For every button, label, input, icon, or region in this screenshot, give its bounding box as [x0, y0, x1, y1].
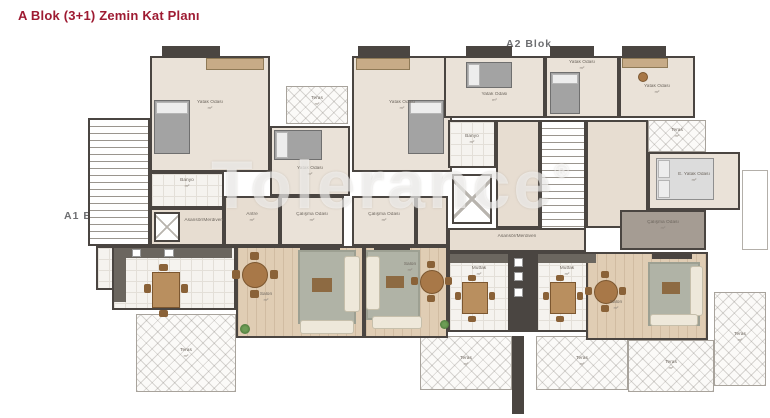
- chair: [556, 275, 564, 281]
- chair: [556, 316, 564, 322]
- chair: [250, 252, 259, 260]
- page-title: A Blok (3+1) Zemin Kat Planı: [18, 8, 200, 23]
- chair: [427, 295, 435, 302]
- chair: [577, 292, 583, 300]
- bathroom-a1: [150, 172, 224, 208]
- room-calisma-1: [280, 196, 344, 246]
- room-calisma-2: [352, 196, 416, 246]
- room-antre-1: [224, 196, 280, 246]
- chair: [270, 270, 278, 279]
- appliance: [514, 288, 523, 297]
- terrace-top-2: [648, 120, 706, 152]
- staircase-a1: [88, 118, 150, 246]
- sofa: [372, 316, 422, 329]
- facade-bump: [622, 46, 666, 56]
- kitchen-table: [152, 272, 180, 308]
- pillow: [658, 160, 670, 178]
- chair: [543, 292, 549, 300]
- sofa: [650, 314, 698, 326]
- dining-table: [242, 262, 268, 288]
- kitchen-counter: [538, 254, 596, 263]
- facade-bump: [466, 46, 512, 56]
- wardrobe: [356, 58, 410, 70]
- chair: [445, 277, 452, 285]
- chair: [411, 277, 418, 285]
- pillow: [468, 64, 480, 86]
- chair: [250, 290, 259, 298]
- pillow: [658, 180, 670, 198]
- appliance: [514, 258, 523, 267]
- chair: [489, 292, 495, 300]
- sofa: [300, 320, 354, 334]
- chair: [159, 310, 168, 317]
- chair: [619, 287, 626, 295]
- chair: [468, 316, 476, 322]
- terrace-bottom-right: [628, 340, 714, 392]
- bathroom-a2: [448, 120, 496, 168]
- chair: [455, 292, 461, 300]
- chair: [232, 270, 240, 279]
- coffee-table: [312, 278, 332, 292]
- floor-plan-page: { "title": {"text": "A Blok (3+1) Zemin …: [0, 0, 770, 418]
- terrace-bottom-center-2: [536, 336, 628, 390]
- chair: [427, 261, 435, 268]
- elevator-a2: [452, 174, 492, 224]
- staircase-a2: [540, 120, 586, 232]
- plant: [440, 320, 449, 329]
- chair: [144, 284, 151, 293]
- appliance: [514, 272, 523, 281]
- coffee-table: [662, 282, 680, 294]
- room-calisma-3: [620, 210, 706, 250]
- pillow: [156, 102, 188, 114]
- elevator-hall-a2: [448, 228, 586, 252]
- wall-stub: [512, 392, 524, 414]
- balcony-outline: [742, 170, 768, 250]
- desk: [622, 58, 668, 68]
- chair: [181, 284, 188, 293]
- block-label-a2: A2 Blok: [506, 38, 552, 50]
- facade-bump: [162, 46, 220, 56]
- facade-bump: [358, 46, 410, 56]
- sofa: [344, 256, 360, 312]
- chair: [159, 264, 168, 271]
- coffee-table: [386, 276, 404, 288]
- desk-chair: [638, 72, 648, 82]
- terrace-far-right: [714, 292, 766, 386]
- stove: [164, 249, 174, 257]
- elevator-a1: [154, 212, 180, 242]
- kitchen-counter: [114, 258, 126, 302]
- kitchen-counter: [450, 254, 508, 263]
- chair: [468, 275, 476, 281]
- kitchen-table: [550, 282, 576, 314]
- pillow: [552, 74, 578, 84]
- terrace-divider-wall: [512, 336, 524, 392]
- terrace-top-1: [286, 86, 348, 124]
- chair: [601, 305, 609, 312]
- chair: [601, 271, 609, 278]
- corridor: [416, 196, 448, 246]
- tv-unit: [652, 253, 692, 259]
- sofa: [366, 256, 380, 310]
- terrace-bottom-left: [136, 314, 236, 392]
- pillow: [410, 102, 442, 114]
- sink: [132, 249, 141, 257]
- sofa: [690, 266, 703, 316]
- facade-bump: [550, 46, 594, 56]
- core-a2-hall: [496, 120, 540, 228]
- dining-table: [594, 280, 618, 304]
- kitchen-table: [462, 282, 488, 314]
- chair: [585, 287, 592, 295]
- pillow: [276, 132, 288, 158]
- plant: [240, 324, 250, 334]
- wardrobe: [206, 58, 264, 70]
- dining-table: [420, 270, 444, 294]
- terrace-bottom-center-1: [420, 336, 512, 390]
